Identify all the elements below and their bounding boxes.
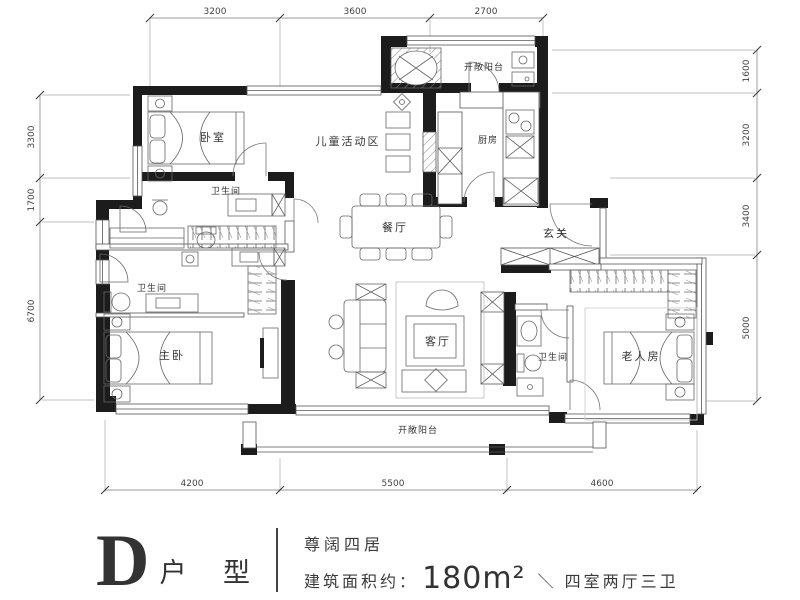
shelf-children: [386, 94, 410, 172]
dim-top-2: 3600: [344, 7, 367, 17]
window: [247, 86, 381, 95]
balcony-sill: [296, 406, 549, 415]
dim-right-2: 3200: [742, 123, 752, 146]
furniture: [100, 48, 697, 420]
dim-left-2: 1700: [27, 188, 37, 211]
dim-bottom-1: 4200: [181, 479, 204, 489]
title-divider: [276, 528, 278, 592]
unit-spec: 四室两厅三卫: [565, 568, 679, 592]
dim-bottom-2: 5500: [382, 479, 405, 489]
dim-left-3: 6700: [27, 299, 37, 322]
label-bedroom: 卧室: [200, 130, 226, 144]
bed-bedroom: [148, 96, 244, 181]
label-kitchen: 厨房: [478, 134, 498, 146]
dim-right-4: 5000: [742, 316, 752, 339]
dim-bottom-3: 4600: [591, 479, 614, 489]
window: [697, 258, 706, 414]
floorplan-drawing: 3200 3600 2700 4200 5500 4600 3300 1700 …: [0, 0, 800, 512]
dim-right-1: 1600: [742, 59, 752, 82]
spec-separator: ＼: [538, 568, 557, 592]
window: [565, 414, 690, 423]
window: [133, 146, 142, 196]
unit-label: 户 型: [159, 551, 264, 590]
unit-specline: 建筑面积约： 180m² ＼ 四室两厅三卫: [304, 565, 679, 592]
label-bath-right: 卫生间: [538, 351, 568, 363]
label-living: 客厅: [425, 334, 451, 348]
label-bath-mid: 卫生间: [137, 282, 167, 294]
label-master-bedroom: 主卧: [159, 349, 185, 362]
window: [96, 260, 109, 284]
bed-elderly: [585, 308, 697, 420]
label-balcony-bottom: 开敞阳台: [398, 424, 438, 436]
ac-unit: [391, 48, 534, 88]
unit-letter: D: [96, 531, 149, 592]
dim-top-1: 3200: [204, 7, 227, 17]
label-balcony-top: 开敞阳台: [464, 61, 504, 73]
area-value: 180m²: [422, 565, 526, 592]
area-label: 建筑面积约：: [304, 568, 418, 592]
window: [407, 36, 535, 45]
label-children-area: 儿童活动区: [316, 134, 381, 148]
dim-right-3: 3400: [742, 204, 752, 227]
foyer-wardrobe: [570, 270, 696, 318]
living-set: [329, 282, 484, 398]
title-block: D 户 型 尊阔四居 建筑面积约： 180m² ＼ 四室两厅三卫: [96, 514, 736, 592]
bed-master: [104, 266, 278, 402]
floorplan-page: 3200 3600 2700 4200 5500 4600 3300 1700 …: [0, 0, 800, 600]
label-bath-top: 卫生间: [211, 185, 241, 197]
label-foyer: 玄关: [543, 226, 569, 240]
label-elderly-room: 老人房: [622, 350, 661, 363]
dim-left-1: 3300: [27, 125, 37, 148]
unit-tagline: 尊阔四居: [304, 531, 679, 555]
unit-description: 尊阔四居 建筑面积约： 180m² ＼ 四室两厅三卫: [304, 531, 679, 592]
window: [116, 404, 248, 414]
label-dining: 餐厅: [382, 220, 408, 234]
dim-top-3: 2700: [475, 7, 498, 17]
